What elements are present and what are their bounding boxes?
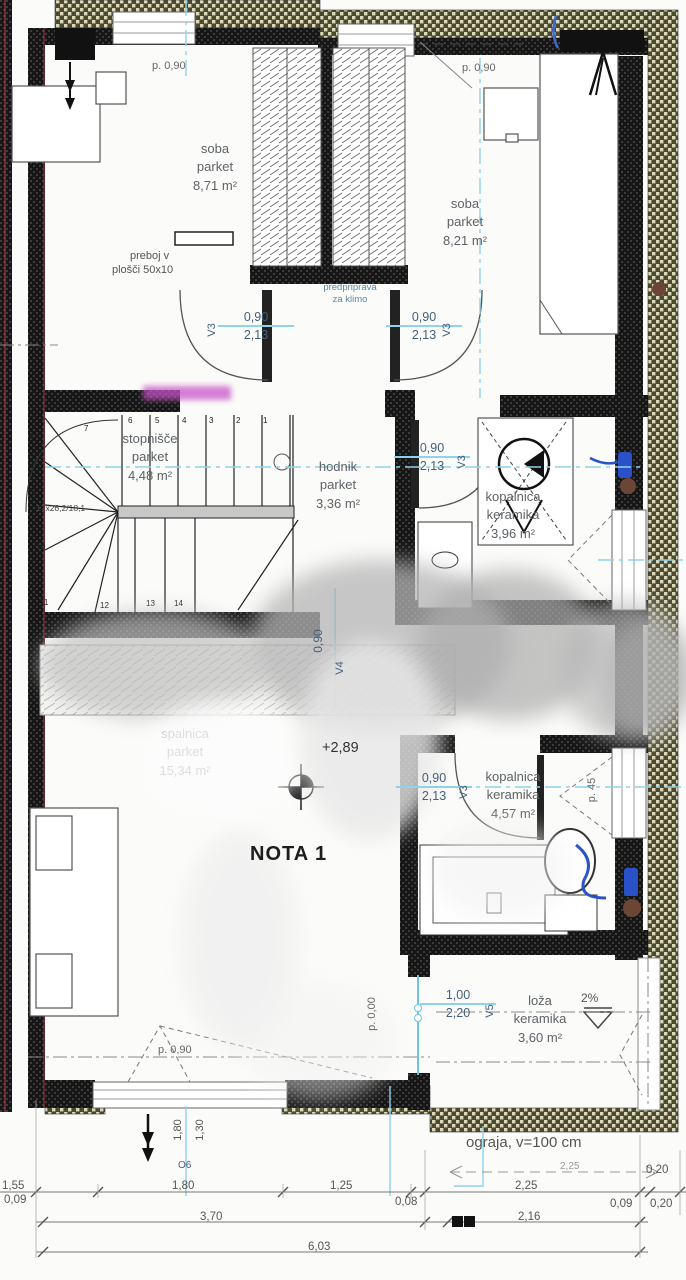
dim-2-25: 2,25 (515, 1180, 537, 1192)
stair-step-number: 1 (263, 416, 267, 425)
door-code-v3-3: V3 (456, 450, 468, 474)
dim-0-09-right: 0,09 (610, 1198, 632, 1210)
stair-step-number: 6 (128, 416, 132, 425)
door-width-v4: 0,90 (311, 618, 325, 664)
preboj-note-line1: preboj v (130, 250, 169, 262)
room-area: 3,96 m² (458, 525, 568, 543)
dim-railing-2-25: 2,25 (560, 1161, 579, 1172)
room-area: 8,21 m² (410, 232, 520, 250)
room-finish: keramika (458, 786, 568, 804)
room-finish: parket (283, 476, 393, 494)
stair-step-number: 9 (31, 488, 35, 497)
room-name: spalnica (130, 725, 240, 743)
elevation-label: +2,89 (322, 740, 359, 756)
slope-label: 2% (581, 991, 598, 1005)
room-name: kopalnica (458, 768, 568, 786)
door-code-v3-1: V3 (206, 318, 218, 342)
dim-0-20-high: 0,20 (646, 1164, 668, 1176)
parapet-label-top-right: p. 0,90 (462, 62, 496, 74)
room-finish: keramika (485, 1010, 595, 1028)
room-name: stopnišče (95, 430, 205, 448)
room-label-loza: loža keramika 3,60 m² (485, 992, 595, 1047)
klima-note-line1: predpriprava (295, 282, 405, 293)
room-label-spalnica: spalnica parket 15,34 m² (130, 725, 240, 780)
dim-1-55: 1,55 (2, 1180, 24, 1192)
door-width: 0,90 (228, 310, 284, 324)
stair-step-number: 13 (146, 599, 155, 608)
window-o6-width: 1,80 (172, 1110, 184, 1150)
marker-smudge (143, 386, 231, 400)
stair-step-number: 5 (155, 416, 159, 425)
stair-step-number: 12 (100, 601, 109, 610)
parapet-label-bottom: p. 0,90 (158, 1044, 192, 1056)
door-label-v3-4: 0,90 2,13 (406, 771, 462, 803)
room-label-hodnik: hodnik parket 3,36 m² (283, 458, 393, 513)
floor-plan: soba parket 8,71 m² soba parket 8,21 m² … (0, 0, 686, 1280)
room-label-kopalnica-2: kopalnica keramika 4,57 m² (458, 768, 568, 823)
room-area: 15,34 m² (130, 762, 240, 780)
door-code-v3-2: V3 (441, 318, 453, 342)
klima-note-line2: za klimo (295, 294, 405, 305)
room-finish: parket (410, 213, 520, 231)
door-code-v5: V5 (484, 999, 496, 1023)
door-width: 0,90 (404, 441, 460, 455)
door-label-v3-1: 0,90 2,13 (228, 310, 284, 342)
room-name: loža (485, 992, 595, 1010)
door-code-v4: V4 (334, 653, 346, 683)
door-code-v3-4: V3 (458, 780, 470, 804)
stair-step-number: 3 (209, 416, 213, 425)
stair-step-number: 11 (40, 598, 48, 607)
room-finish: parket (130, 743, 240, 761)
dim-0-08: 0,08 (395, 1196, 417, 1208)
room-area: 4,48 m² (95, 467, 205, 485)
dim-0-09-left: 0,09 (4, 1194, 26, 1206)
room-name: hodnik (283, 458, 393, 476)
door-height: 2,20 (430, 1006, 486, 1020)
floorplan-drawing (0, 0, 686, 1280)
dim-0-20-low: 0,20 (650, 1198, 672, 1210)
room-area: 3,60 m² (485, 1029, 595, 1047)
room-name: soba (160, 140, 270, 158)
dim-1-25: 1,25 (330, 1180, 352, 1192)
room-finish: keramika (458, 506, 568, 524)
door-label-v3-3: 0,90 2,13 (404, 441, 460, 473)
unit-label: NOTA 1 (250, 843, 327, 866)
room-label-soba-2: soba parket 8,21 m² (410, 195, 520, 250)
room-finish: parket (160, 158, 270, 176)
stair-spec-note: 17x26,2/18,1 (36, 503, 85, 513)
stair-step-number: 2 (236, 416, 240, 425)
door-width: 1,00 (430, 988, 486, 1002)
room-area: 3,36 m² (283, 495, 393, 513)
dim-2-16: 2,16 (518, 1211, 540, 1223)
room-name: kopalnica (458, 488, 568, 506)
dim-6-03: 6,03 (308, 1241, 330, 1253)
stair-step-number: 10 (36, 542, 45, 551)
dim-1-80: 1,80 (172, 1180, 194, 1192)
stair-step-number: 8 (29, 432, 33, 441)
window-o6-code: O6 (178, 1160, 191, 1171)
stair-step-number: 4 (182, 416, 186, 425)
fraction-bar (218, 325, 294, 327)
door-width: 0,90 (406, 771, 462, 785)
preboj-note-line2: plošči 50x10 (112, 264, 173, 276)
room-label-kopalnica-1: kopalnica keramika 3,96 m² (458, 488, 568, 543)
dim-3-70: 3,70 (200, 1211, 222, 1223)
room-area: 4,57 m² (458, 805, 568, 823)
railing-note: ograja, v=100 cm (466, 1134, 581, 1151)
door-height: 2,13 (228, 328, 284, 342)
stair-step-number: 14 (174, 599, 183, 608)
room-finish: parket (95, 448, 205, 466)
parapet-label-loza: p. 0,00 (366, 994, 378, 1034)
room-label-soba-1: soba parket 8,71 m² (160, 140, 270, 195)
door-height: 2,13 (406, 789, 462, 803)
door-height: 2,13 (404, 459, 460, 473)
parapet-label-top-left: p. 0,90 (152, 60, 186, 72)
door-label-v5: 1,00 2,20 (430, 988, 486, 1020)
window-o6-height: 1,30 (194, 1110, 206, 1150)
stair-step-number: 7 (84, 424, 88, 433)
room-area: 8,71 m² (160, 177, 270, 195)
room-label-stopnisce: stopnišče parket 4,48 m² (95, 430, 205, 485)
parapet-label-kop2: p. 45 (586, 770, 598, 810)
room-name: soba (410, 195, 520, 213)
